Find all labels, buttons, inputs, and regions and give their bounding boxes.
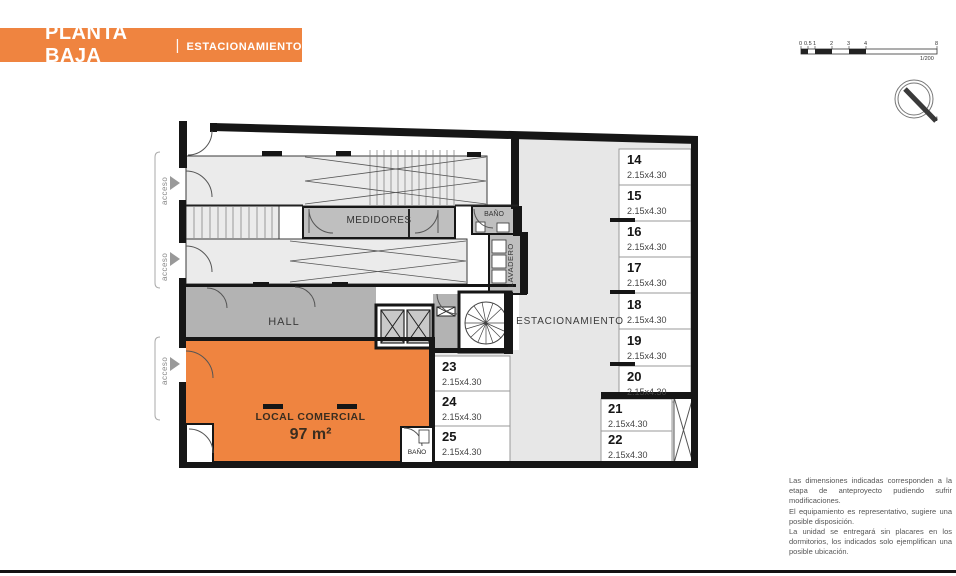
access-label-2: acceso [160, 246, 169, 288]
parking-stall-17: 17 2.15x4.30 [627, 261, 667, 288]
scale-ratio: 1/200 [920, 56, 934, 62]
room-label-estacionamiento: ESTACIONAMIENTO [500, 316, 640, 327]
title-bar: PLANTA BAJA | ESTACIONAMIENTO [0, 28, 302, 62]
parking-stall-18: 18 2.15x4.30 [627, 298, 667, 325]
parking-stall-15: 15 2.15x4.30 [627, 189, 667, 216]
scale-tick: 2 [830, 41, 833, 47]
parking-stall-19: 19 2.15x4.30 [627, 334, 667, 361]
local-comercial-area: 97 m² [214, 426, 407, 444]
room-label-hall: HALL [239, 316, 329, 328]
bottom-rule [0, 570, 956, 573]
page-subtitle: ESTACIONAMIENTO [186, 41, 302, 53]
access-arrows [170, 176, 180, 371]
shaft-x [674, 397, 693, 463]
parking-stall-25: 25 2.15x4.30 [442, 430, 482, 457]
scale-tick: 4 [864, 41, 867, 47]
room-label-local-comercial: LOCAL COMERCIAL [214, 411, 407, 423]
room-label-banio: BAÑO [472, 211, 516, 218]
room-label-banio-local: BAÑO [401, 449, 433, 456]
parking-stall-16: 16 2.15x4.30 [627, 225, 667, 252]
parking-stall-20: 20 2.15x4.30 [627, 370, 667, 397]
scale-tick: 1 [813, 41, 816, 47]
scale-tick: 0.5 [804, 41, 812, 47]
title-separator: | [176, 37, 180, 54]
room-label-lavadero: LAVADERO [506, 237, 520, 293]
scale-tick: 3 [847, 41, 850, 47]
north-label: N [933, 116, 938, 123]
scale-tick: 8 [935, 41, 938, 47]
room-label-medidores: MEDIDORES [303, 215, 455, 226]
parking-stall-22: 22 2.15x4.30 [608, 433, 648, 460]
parking-stall-21: 21 2.15x4.30 [608, 402, 648, 429]
north-compass-icon [895, 80, 936, 121]
local-comercial-fill [186, 341, 429, 463]
disclaimer-text: Las dimensiones indicadas corresponden a… [789, 476, 952, 558]
floor-plan-page: PLANTA BAJA | ESTACIONAMIENTO 0 0.5 1 2 … [0, 0, 956, 576]
disclaimer-paragraph: La unidad se entregará sin placares en l… [789, 527, 952, 557]
parking-stall-24: 24 2.15x4.30 [442, 395, 482, 422]
parking-stall-14: 14 2.15x4.30 [627, 153, 667, 180]
scale-bar [801, 46, 937, 54]
access-label-3: acceso [160, 350, 169, 392]
disclaimer-paragraph: Las dimensiones indicadas corresponden a… [789, 476, 952, 506]
parking-stall-23: 23 2.15x4.30 [442, 360, 482, 387]
page-title: PLANTA BAJA [45, 22, 169, 68]
access-label-1: acceso [160, 170, 169, 212]
scale-tick: 0 [799, 41, 802, 47]
disclaimer-paragraph: El equipamiento es representativo, sugie… [789, 507, 952, 527]
entry-alcove [186, 424, 213, 463]
